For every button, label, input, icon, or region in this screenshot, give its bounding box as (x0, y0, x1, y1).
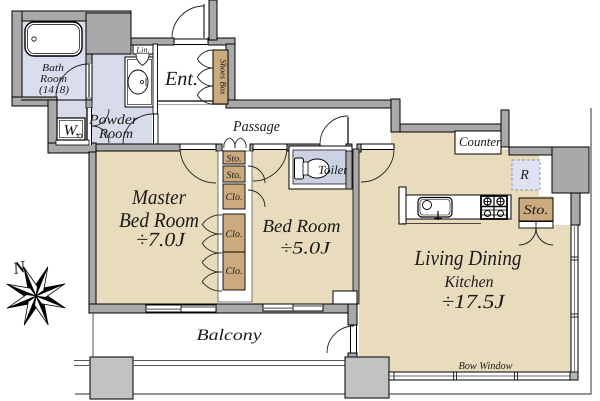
svg-text:Toilet: Toilet (318, 163, 348, 177)
svg-text:Powder: Powder (88, 113, 139, 128)
svg-text:Sto.: Sto. (524, 202, 549, 217)
svg-text:R: R (519, 168, 529, 183)
svg-text:Counter: Counter (459, 134, 502, 149)
svg-text:Sto.: Sto. (226, 170, 241, 181)
svg-text:÷7.0J: ÷7.0J (136, 229, 186, 251)
svg-text:÷5.0J: ÷5.0J (280, 238, 332, 258)
svg-text:Balcony: Balcony (197, 327, 263, 344)
svg-text:Lin.: Lin. (135, 45, 149, 55)
svg-text:Bath: Bath (42, 63, 64, 74)
svg-text:Living Dining: Living Dining (414, 246, 522, 270)
svg-text:Sto.: Sto. (226, 154, 241, 165)
svg-text:Passage: Passage (232, 119, 280, 135)
svg-text:Bed Room: Bed Room (263, 217, 341, 237)
svg-text:Clo.: Clo. (226, 266, 243, 277)
svg-text:Room: Room (98, 127, 133, 142)
svg-text:Shoes Box: Shoes Box (219, 59, 229, 94)
svg-text:(1418): (1418) (39, 85, 70, 96)
svg-text:Room: Room (39, 74, 68, 85)
svg-text:Bow Window: Bow Window (459, 361, 513, 372)
svg-text:Master: Master (131, 185, 187, 209)
svg-text:Clo.: Clo. (226, 229, 243, 240)
svg-text:÷17.5J: ÷17.5J (442, 291, 506, 313)
svg-text:Clo.: Clo. (226, 192, 243, 203)
svg-text:W.: W. (64, 123, 80, 139)
svg-text:Ent.: Ent. (164, 68, 198, 90)
svg-text:Kitchen: Kitchen (444, 272, 494, 291)
